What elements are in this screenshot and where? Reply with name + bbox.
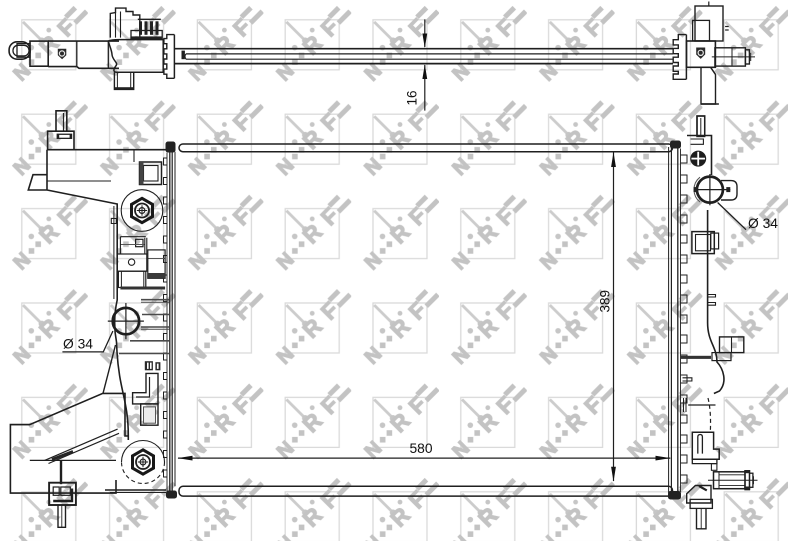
svg-text:580: 580 bbox=[410, 441, 433, 456]
svg-text:16: 16 bbox=[405, 90, 420, 105]
svg-text:Ø 34: Ø 34 bbox=[63, 336, 93, 351]
svg-text:389: 389 bbox=[598, 290, 613, 313]
svg-text:Ø 34: Ø 34 bbox=[748, 216, 778, 231]
